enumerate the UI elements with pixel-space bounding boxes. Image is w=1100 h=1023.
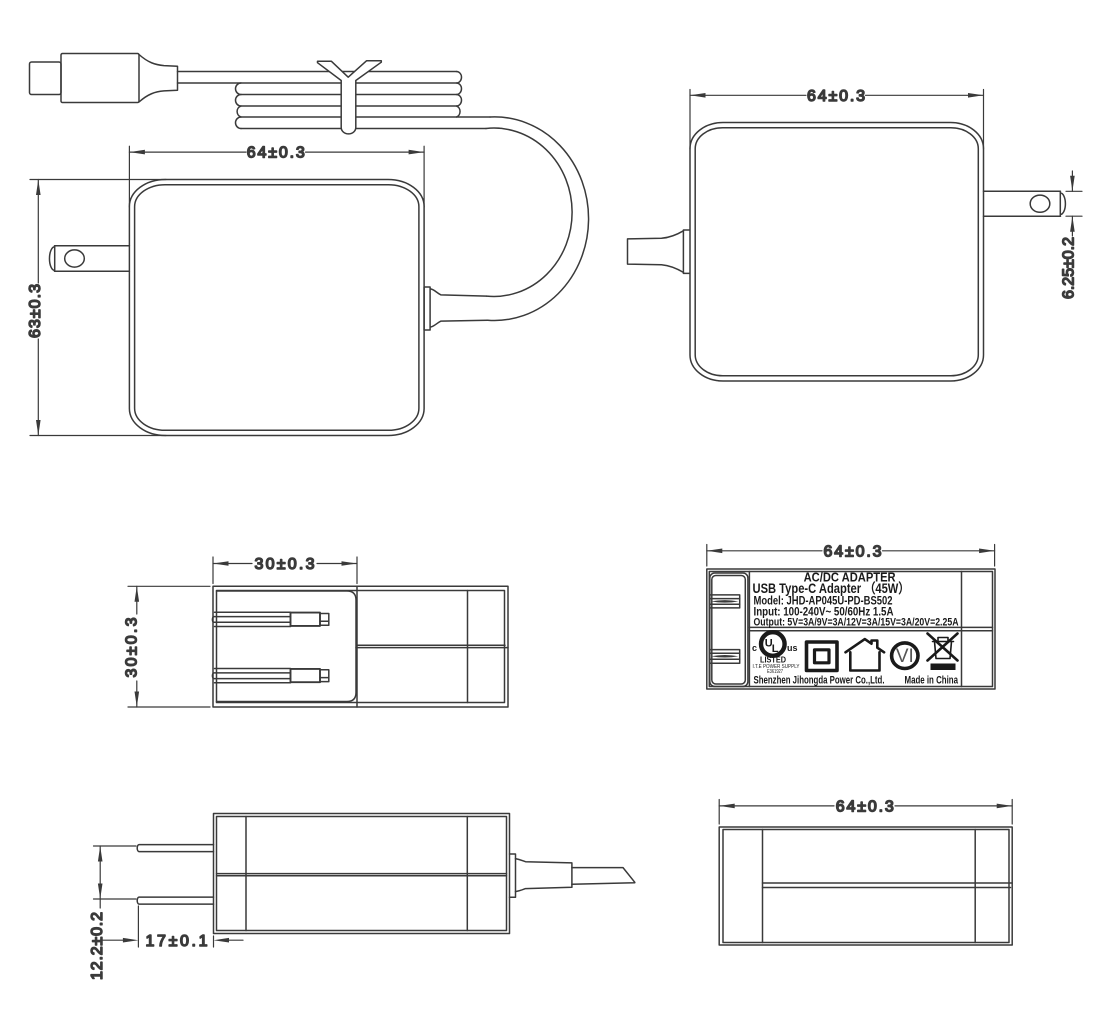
svg-text:VI: VI [896,646,914,667]
svg-text:USB Type-C Adapter （45W）: USB Type-C Adapter （45W） [753,581,910,596]
svg-text:17±0.1: 17±0.1 [146,933,208,950]
svg-text:12.2±0.2: 12.2±0.2 [89,912,106,980]
svg-text:64±0.3: 64±0.3 [836,799,894,816]
svg-text:c: c [752,643,757,653]
svg-text:Shenzhen Jihongda Power Co.,Lt: Shenzhen Jihongda Power Co.,Ltd. [754,675,885,687]
svg-text:63±0.3: 63±0.3 [27,284,44,338]
svg-text:64±0.3: 64±0.3 [807,88,865,105]
svg-text:us: us [787,643,798,653]
svg-text:Model: JHD-AP045U-PD-BS502: Model: JHD-AP045U-PD-BS502 [754,595,893,607]
svg-text:L: L [772,643,779,655]
svg-text:Output: 5V=3A/9V=3A/12V=3A/15V: Output: 5V=3A/9V=3A/12V=3A/15V=3A/20V=2.… [754,617,959,629]
svg-text:64±0.3: 64±0.3 [824,543,882,560]
svg-text:30±0.3: 30±0.3 [124,617,141,677]
svg-text:LISTED: LISTED [760,654,786,664]
svg-text:64±0.3: 64±0.3 [247,145,305,162]
svg-text:30±0.3: 30±0.3 [255,556,315,573]
svg-text:6.25±0.2: 6.25±0.2 [1061,237,1078,299]
svg-text:Made in China: Made in China [905,675,959,687]
